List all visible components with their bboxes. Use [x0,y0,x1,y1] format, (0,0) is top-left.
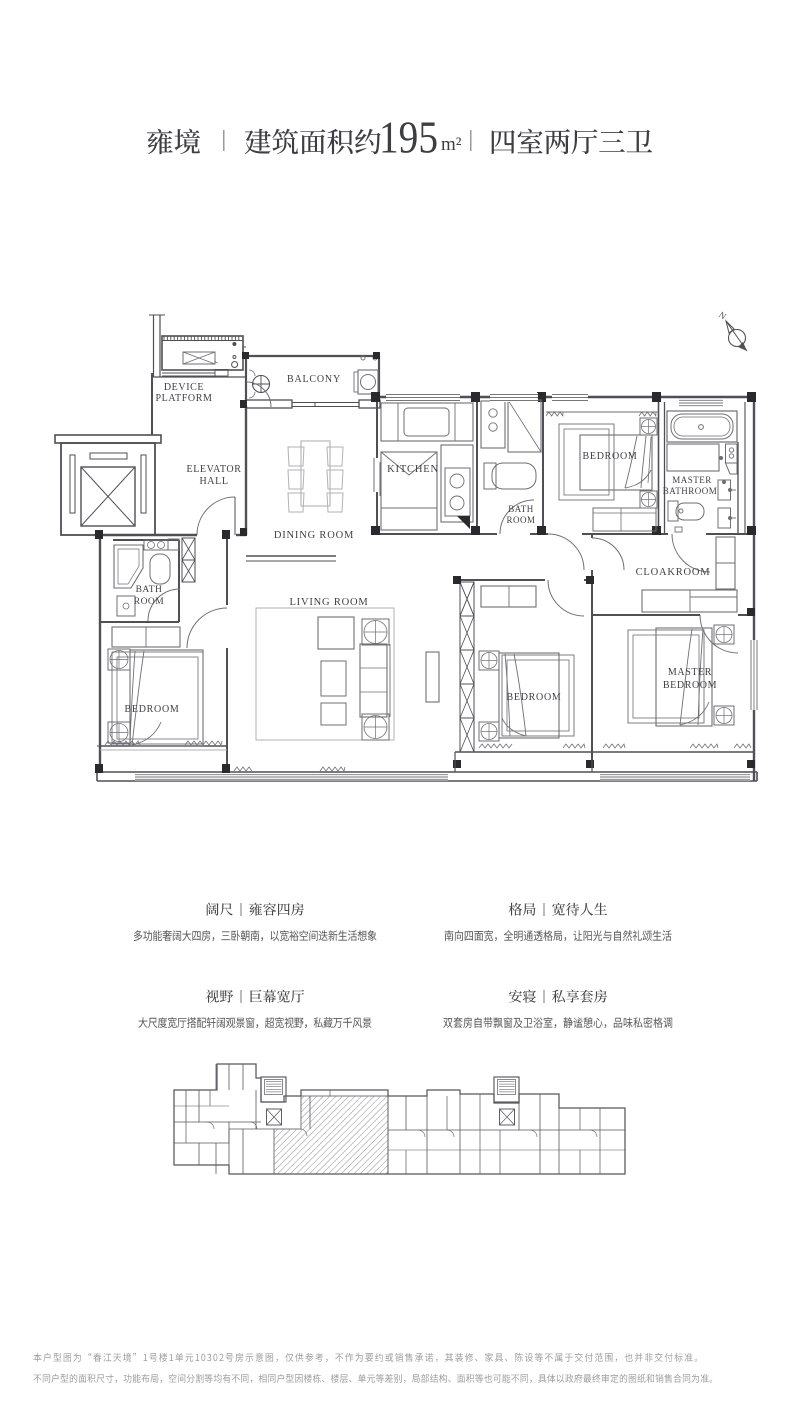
svg-text:BATH: BATH [508,504,534,514]
svg-text:BATHROOM: BATHROOM [663,486,718,496]
svg-text:195: 195 [379,112,438,163]
svg-text:DINING ROOM: DINING ROOM [274,530,354,541]
svg-text:MASTER: MASTER [672,475,712,485]
svg-text:LIVING ROOM: LIVING ROOM [289,597,368,608]
svg-text:KITCHEN: KITCHEN [387,464,439,475]
svg-text:BEDROOM: BEDROOM [663,680,717,691]
svg-text:m²: m² [441,134,462,155]
svg-text:BALCONY: BALCONY [287,374,341,385]
svg-text:ROOM: ROOM [134,597,165,607]
svg-text:BEDROOM: BEDROOM [507,692,562,703]
svg-text:N: N [717,310,728,322]
svg-text:DEVICE: DEVICE [164,382,204,393]
svg-text:HALL: HALL [199,476,228,487]
svg-text:BEDROOM: BEDROOM [125,704,180,715]
svg-text:CLOAKROOM: CLOAKROOM [636,567,711,578]
svg-text:ELEVATOR: ELEVATOR [187,464,242,475]
svg-text:PLATFORM: PLATFORM [155,393,212,404]
svg-text:BATH: BATH [136,585,163,595]
svg-text:BEDROOM: BEDROOM [583,451,638,462]
svg-text:MASTER: MASTER [668,667,712,678]
svg-text:ROOM: ROOM [506,515,535,525]
